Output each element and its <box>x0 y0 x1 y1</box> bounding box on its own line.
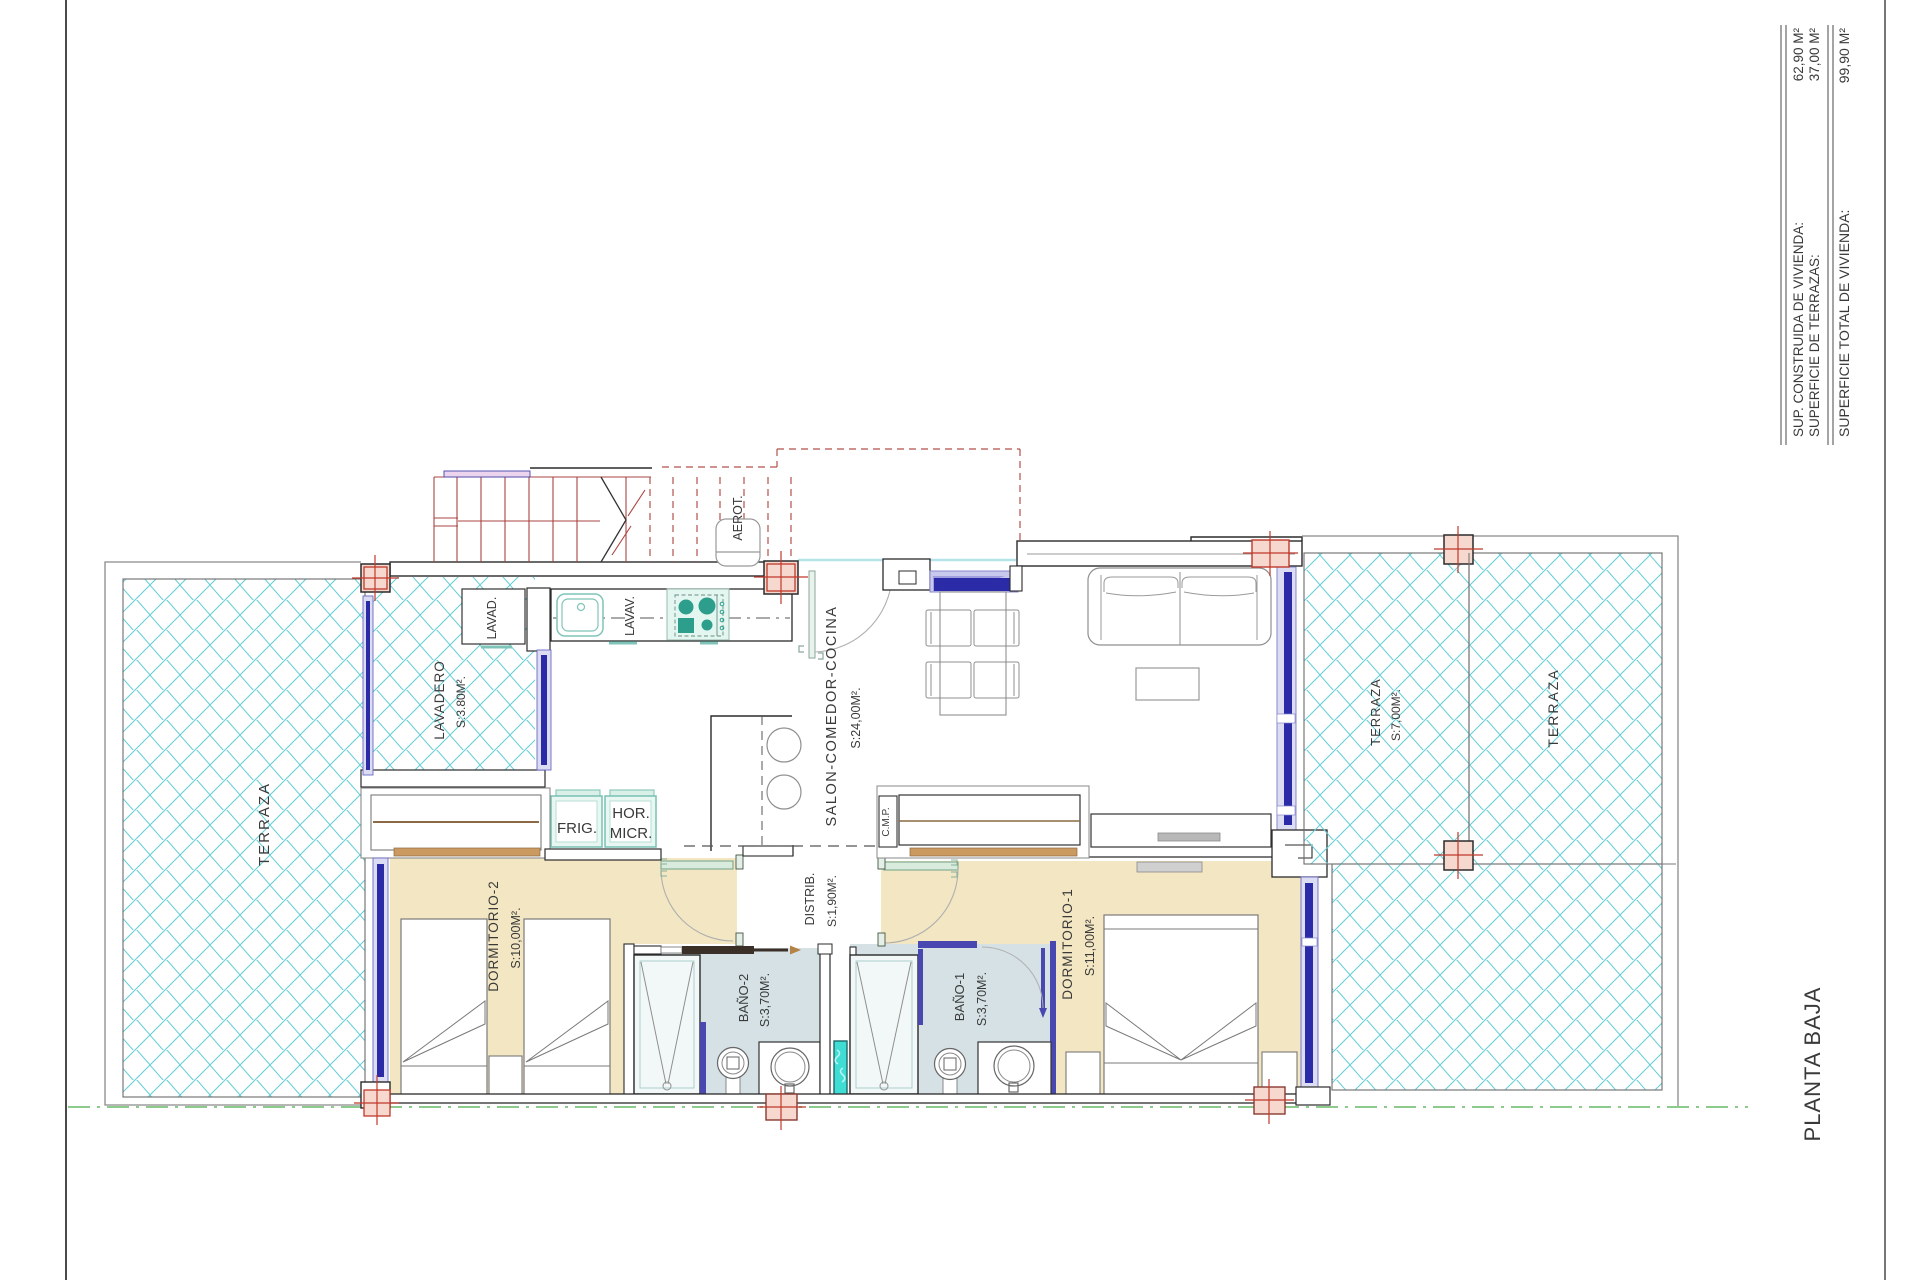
svg-text:LAVADERO: LAVADERO <box>432 660 447 740</box>
svg-text:BAÑO-2: BAÑO-2 <box>736 974 751 1022</box>
svg-text:MICR.: MICR. <box>610 825 653 842</box>
svg-text:PLANTA BAJA: PLANTA BAJA <box>1800 987 1825 1142</box>
svg-text:LAVAV.: LAVAV. <box>623 596 637 636</box>
svg-text:HOR.: HOR. <box>612 805 650 822</box>
svg-text:37,00 M²: 37,00 M² <box>1807 28 1822 82</box>
svg-text:99,90 M²: 99,90 M² <box>1836 28 1852 84</box>
svg-text:S:1,90M².: S:1,90M². <box>825 875 839 927</box>
svg-text:SUPERFICIE DE TERRAZAS:: SUPERFICIE DE TERRAZAS: <box>1807 254 1822 437</box>
svg-text:DORMITORIO-2: DORMITORIO-2 <box>486 880 501 992</box>
svg-text:S:3,70M².: S:3,70M². <box>758 973 772 1027</box>
svg-text:C.M.P.: C.M.P. <box>881 807 892 836</box>
svg-text:TERRAZA: TERRAZA <box>256 782 273 866</box>
svg-text:DORMITORIO-1: DORMITORIO-1 <box>1060 888 1075 1000</box>
svg-text:S:3.80M².: S:3.80M². <box>454 676 468 728</box>
svg-text:62,90 M²: 62,90 M² <box>1791 28 1806 82</box>
svg-text:S:10,00M².: S:10,00M². <box>509 907 523 968</box>
svg-text:FRIG.: FRIG. <box>557 820 597 837</box>
svg-text:SUPERFICIE TOTAL DE VIVIENDA:: SUPERFICIE TOTAL DE VIVIENDA: <box>1836 210 1852 437</box>
svg-text:S:7,00M².: S:7,00M². <box>1389 689 1403 741</box>
svg-text:S:3,70M².: S:3,70M². <box>975 972 989 1026</box>
svg-text:AEROT.: AEROT. <box>731 495 745 540</box>
svg-text:S:24,00M².: S:24,00M². <box>849 687 863 748</box>
svg-text:SALON-COMEDOR-COCINA: SALON-COMEDOR-COCINA <box>824 606 840 827</box>
svg-text:TERRAZA: TERRAZA <box>1368 678 1383 746</box>
svg-text:LAVAD.: LAVAD. <box>485 597 499 640</box>
svg-text:S:11,00M².: S:11,00M². <box>1083 916 1097 976</box>
svg-text:TERRAZA: TERRAZA <box>1545 668 1561 747</box>
svg-text:DISTRIB.: DISTRIB. <box>803 873 817 926</box>
svg-text:BAÑO-1: BAÑO-1 <box>952 973 967 1021</box>
svg-text:SUP. CONSTRUIDA DE VIVIENDA:: SUP. CONSTRUIDA DE VIVIENDA: <box>1791 222 1806 437</box>
